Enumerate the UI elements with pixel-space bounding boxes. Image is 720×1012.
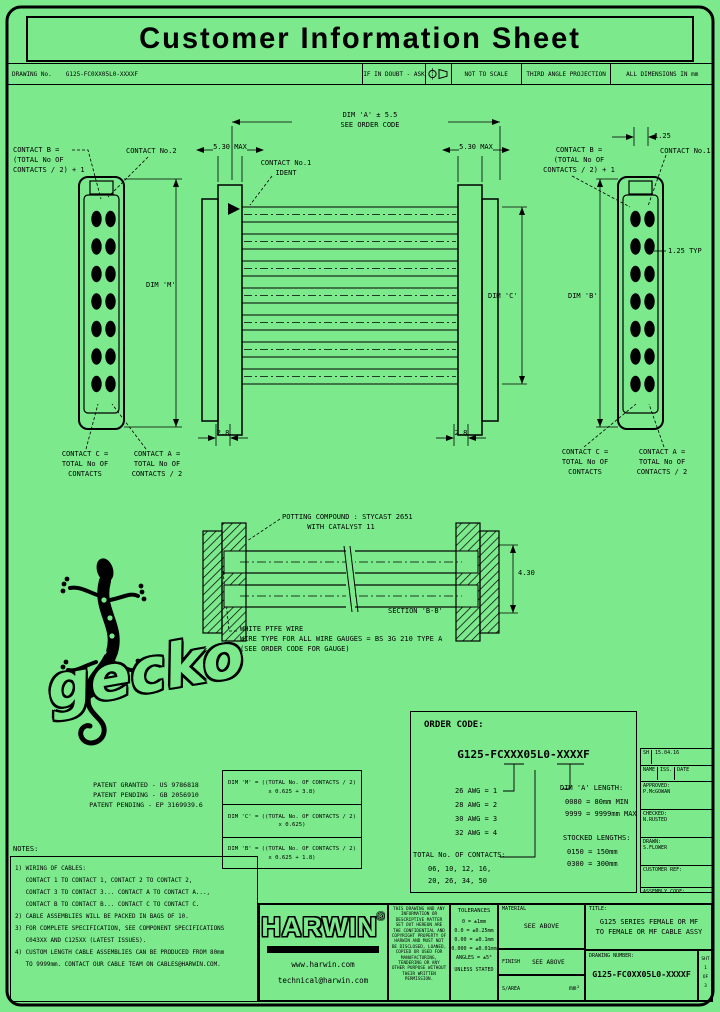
dwg-number-value: G125-FC0XX05L0-XXXXF: [586, 969, 697, 979]
order-gauge-options: 26 AWG = 1 28 AWG = 2 30 AWG = 3 32 AWG …: [455, 784, 497, 840]
contact-b-note-right: CONTACT B = (TOTAL No OF CONTACTS / 2) +…: [536, 146, 622, 175]
projection-cell: THIRD ANGLE PROJECTION: [521, 64, 611, 84]
rev-name-label: NAME: [643, 767, 658, 780]
sheet-cell: SHT 1 OF 3: [698, 950, 713, 1002]
legal-text: THIS DRAWING AND ANY INFORMATION OR DESC…: [389, 904, 449, 986]
sarea-unit: mm²: [569, 985, 584, 992]
material-value: SEE ABOVE: [499, 922, 584, 930]
sarea-cell: S/AREA mm²: [498, 975, 585, 1002]
dimensions-unit-cell: ALL DIMENSIONS IN mm: [610, 64, 713, 84]
finish-label: FINISH: [499, 959, 520, 965]
order-contacts-values: 06, 10, 12, 16, 20, 26, 34, 50: [428, 863, 491, 887]
not-to-scale-cell: NOT TO SCALE: [451, 64, 521, 84]
title-value: G125 SERIES FEMALE OR MF TO FEMALE OR MF…: [586, 917, 712, 937]
tolerances-heading: TOLERANCES: [451, 908, 497, 914]
harwin-underline-bar: [267, 946, 379, 953]
contact-no1-ident-label: CONTACT No.1 IDENT: [250, 159, 322, 179]
finish-cell: FINISH SEE ABOVE: [498, 949, 585, 975]
contact-a-note-right: CONTACT A = TOTAL No OF CONTACTS / 2: [622, 448, 702, 477]
order-contacts-label: TOTAL No. OF CONTACTS:: [413, 851, 506, 861]
title-cell: TITLE: G125 SERIES FEMALE OR MF TO FEMAL…: [585, 903, 713, 950]
max-dim-right: 5.30 MAX: [444, 143, 508, 153]
material-label: MATERIAL: [499, 904, 584, 914]
section-bb-label: SECTION 'B-B': [388, 607, 443, 617]
harwin-wordmark: HARWIN: [261, 912, 378, 942]
order-code-heading: ORDER CODE:: [424, 719, 484, 732]
order-code-value: G125-FCXXX05L0-XXXXF: [410, 747, 637, 762]
harwin-email: technical@harwin.com: [259, 976, 387, 985]
projection-symbol-cell: [425, 64, 451, 84]
potting-compound-note: POTTING COMPOUND : STYCAST 2651 WITH CAT…: [282, 513, 413, 533]
drawing-number-label: DRAWING No.: [12, 71, 52, 78]
tolerances-cell: TOLERANCES 0 = ±1mm 0.0 = ±0.25mm 0.00 =…: [450, 903, 498, 1002]
sarea-label: S/AREA: [499, 986, 520, 992]
notes-heading: NOTES:: [13, 845, 38, 855]
harwin-url: www.harwin.com: [259, 960, 387, 969]
rev-iss-label: ISS.: [658, 767, 675, 780]
drawing-number-cell: DRAWING No. G125-FC0XX05L0-XXXXF: [7, 64, 362, 84]
contact-c-note-left: CONTACT C = TOTAL No OF CONTACTS: [48, 450, 122, 479]
contact-c-note-right: CONTACT C = TOTAL No OF CONTACTS: [548, 448, 622, 477]
sheet-indicator: SHT 1 OF 3: [699, 955, 712, 991]
section-view: [203, 523, 518, 641]
contact-a-note-left: CONTACT A = TOTAL No OF CONTACTS / 2: [118, 450, 196, 479]
dim-c-label: DIM 'C': [488, 292, 518, 302]
order-dim-a-heading: DIM 'A' LENGTH:: [560, 784, 623, 794]
registered-mark: ®: [378, 912, 385, 921]
customer-information-sheet: Customer Information Sheet DRAWING No. G…: [0, 0, 720, 1012]
wire-type-note: WHITE PTFE WIRE WIRE TYPE FOR ALL WIRE G…: [240, 625, 442, 654]
contact-no1-label: CONTACT No.1: [660, 147, 711, 157]
order-stocked-heading: STOCKED LENGTHS:: [563, 834, 630, 844]
left-end-view: [79, 177, 182, 429]
patent-notes: PATENT GRANTED - US 9786818 PATENT PENDI…: [44, 780, 248, 810]
max-dim-left: 5.30 MAX: [198, 143, 262, 153]
harwin-logo: HARWIN®: [259, 912, 387, 943]
finish-value: SEE ABOVE: [532, 959, 565, 966]
dim-b-label: DIM 'B': [568, 292, 598, 302]
tolerances-unless: UNLESS STATED: [451, 967, 497, 973]
order-stocked-values: 0150 = 150mm 0300 = 300mm: [567, 846, 618, 870]
dim-28-right: 2.8: [453, 429, 469, 439]
material-cell: MATERIAL SEE ABOVE: [498, 903, 585, 949]
title-label: TITLE:: [586, 904, 712, 914]
dim-c-formula: DIM 'C' = ((TOTAL No. OF CONTACTS / 2) x…: [228, 813, 356, 830]
harwin-logo-cell: HARWIN® www.harwin.com technical@harwin.…: [258, 903, 388, 1002]
rev-customer-ref: CUSTOMER REF:: [641, 866, 712, 888]
contact-b-note-left: CONTACT B = (TOTAL No OF CONTACTS / 2) +…: [13, 146, 85, 175]
dim-m-label: DIM 'M': [146, 281, 176, 291]
dim-28-left: 2.8: [215, 429, 231, 439]
notes-box: 1) WIRING OF CABLES: CONTACT 1 TO CONTAC…: [10, 856, 258, 1002]
rev-drawn: DRAWN: S.FLOWER: [641, 838, 712, 866]
third-angle-projection-icon: [427, 67, 449, 81]
dim-a-label: DIM 'A' ± 5.5 SEE ORDER CODE: [295, 111, 445, 131]
dwg-number-label: DRAWING NUMBER:: [586, 951, 697, 961]
header-row: DRAWING No. G125-FC0XX05L0-XXXXF IF IN D…: [7, 63, 713, 85]
order-dim-a-values: 0080 = 80mm MIN 9999 = 9999mm MAX: [565, 796, 637, 820]
leader-lines: [72, 150, 666, 631]
rev-approved: APPROVED: P.McGOWAN: [641, 782, 712, 810]
assembly-view: [196, 119, 527, 446]
rev-date: 15.04.16: [652, 750, 679, 764]
gecko-wordmark: gecko: [42, 618, 261, 723]
contact-no2-label: CONTACT No.2: [126, 147, 177, 157]
pitch-typ-label: 1.25 TYP: [668, 247, 702, 257]
if-in-doubt-cell: IF IN DOUBT - ASK: [362, 64, 425, 84]
dim-430-label: 4.30: [518, 569, 535, 579]
notes-body: 1) WIRING OF CABLES: CONTACT 1 TO CONTAC…: [11, 857, 257, 977]
rev-date-label: DATE: [675, 767, 689, 780]
drawing-number-value: G125-FC0XX05L0-XXXXF: [66, 71, 138, 78]
pitch-dim-label: 1.25: [654, 132, 671, 142]
legal-cell: THIS DRAWING AND ANY INFORMATION OR DESC…: [388, 903, 450, 1002]
rev-sh: SH: [643, 750, 652, 764]
title-banner: Customer Information Sheet: [26, 16, 694, 62]
tolerances-values: 0 = ±1mm 0.0 = ±0.25mm 0.00 = ±0.1mm 0.0…: [451, 918, 497, 963]
page-title: Customer Information Sheet: [38, 18, 682, 60]
rev-checked: CHECKED: N.RUSTED: [641, 810, 712, 838]
drawing-number-block-cell: DRAWING NUMBER: G125-FC0XX05L0-XXXXF: [585, 950, 698, 1002]
revision-strip: SH 15.04.16 NAME ISS. DATE APPROVED: P.M…: [640, 748, 713, 893]
